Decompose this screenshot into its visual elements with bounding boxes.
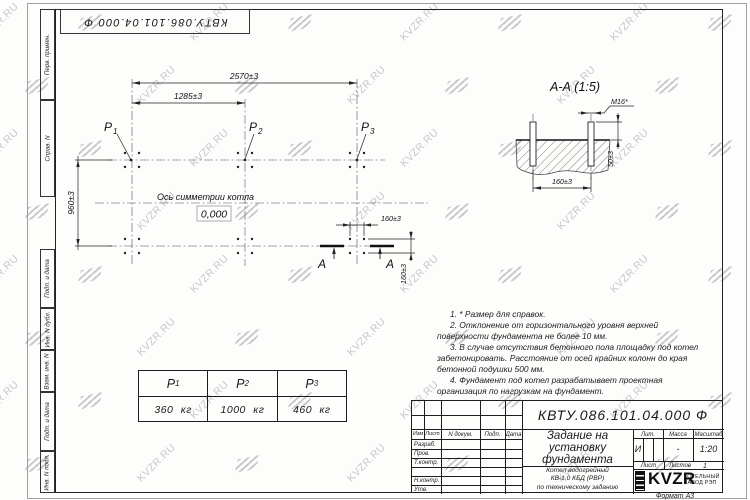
sheets-label: Листов <box>664 463 696 469</box>
title-block: Изм Лист N докум. Подп. Дата Разраб. Про… <box>411 400 723 493</box>
elevation-value: 0,000 <box>201 209 227 221</box>
sheet-label: Лист <box>633 463 664 469</box>
company-logo-icon <box>635 471 645 491</box>
load-label-p1: P1 <box>104 120 117 136</box>
sheets-value: 1 <box>695 463 715 470</box>
sheet-format-label: Формат А3 <box>630 493 720 500</box>
row-prov: Пров. <box>414 451 430 457</box>
load-value-p3: 460 кг <box>278 397 346 422</box>
load-label-p3: P3 <box>361 120 375 136</box>
dim-half-span: 1285±3 <box>174 91 203 101</box>
load-table-header: P2 <box>208 371 277 396</box>
load-table-header: P1 <box>139 371 208 396</box>
col-ndoc: N докум. <box>441 432 480 438</box>
scale-label: Масштаб <box>693 432 724 438</box>
note-3: 3. В случае отсутствия бетонного пола пл… <box>437 342 709 375</box>
load-value-p1: 360 кг <box>139 397 208 422</box>
row-tkontr: Т.контр. <box>414 460 438 466</box>
notes-block: 1. * Размер для справок. 2. Отклонение о… <box>437 309 709 397</box>
note-4: 4. Фундамент под котел разрабатывает про… <box>437 375 709 397</box>
row-razrab: Разраб. <box>414 442 436 448</box>
note-1: 1. * Размер для справок. <box>437 309 709 320</box>
note-2: 2. Отклонение от горизонтального уровня … <box>437 320 709 342</box>
row-utv: Утв. <box>414 487 428 493</box>
lit-label: Лит. <box>633 432 663 438</box>
product-description: Котел водогрейный КВ-1,0 КБД (РВР) по те… <box>522 467 633 492</box>
mass-label: Масса <box>663 432 693 438</box>
plan-view: 2570±3 1285±3 960±3 160±3 160±3 P1 P2 P3… <box>66 71 428 284</box>
anchor-bolt-right <box>588 122 594 166</box>
axis-of-symmetry-label: Ось симметрии котла <box>157 192 254 202</box>
load-table-header-row: P1 P2 P3 <box>139 371 346 397</box>
dim-protrusion: 50±3 <box>606 151 615 167</box>
company-name: КОТЕЛЬНЫЙ ЗАВОД РЭП <box>684 474 720 486</box>
anchor-bolt-left <box>530 122 536 166</box>
lit-value: И <box>633 445 643 454</box>
mass-value: - <box>663 445 693 454</box>
dim-total-span: 2570±3 <box>229 71 259 81</box>
dim-bolt-spacing-section: 160±3 <box>552 177 572 186</box>
section-letter-right: А <box>385 257 394 271</box>
col-izm: Изм <box>412 432 424 438</box>
section-title: А-А (1:5) <box>549 80 600 94</box>
drawing-sheet: KVZR.RUKVZR.RUKVZR.RUKVZR.RUKVZR.RUKVZR.… <box>0 0 750 500</box>
dim-bolt-spacing-x: 160±3 <box>381 214 401 223</box>
dim-bolt-spacing-y: 160±3 <box>399 264 408 284</box>
section-view: А-А (1:5) <box>516 80 634 192</box>
col-data: Дата <box>505 432 522 438</box>
document-title: Задание на установку фундамента <box>522 431 633 466</box>
load-label-p2: P2 <box>249 120 263 136</box>
col-podp: Подп. <box>480 432 505 438</box>
section-letter-left: А <box>317 257 326 271</box>
row-nkontr: Н.контр. <box>414 478 439 484</box>
dim-depth: 960±3 <box>66 191 76 215</box>
bolt-thread-label: М16* <box>611 97 628 106</box>
document-designation: КВТУ.086.101.04.000 Ф <box>522 401 724 428</box>
load-value-p2: 1000 кг <box>208 397 277 422</box>
load-table-value-row: 360 кг 1000 кг 460 кг <box>139 397 346 422</box>
scale-value: 1:20 <box>693 445 724 454</box>
load-table-header: P3 <box>278 371 346 396</box>
load-table: P1 P2 P3 360 кг 1000 кг 460 кг <box>138 370 347 422</box>
col-list: Лист <box>424 432 441 438</box>
